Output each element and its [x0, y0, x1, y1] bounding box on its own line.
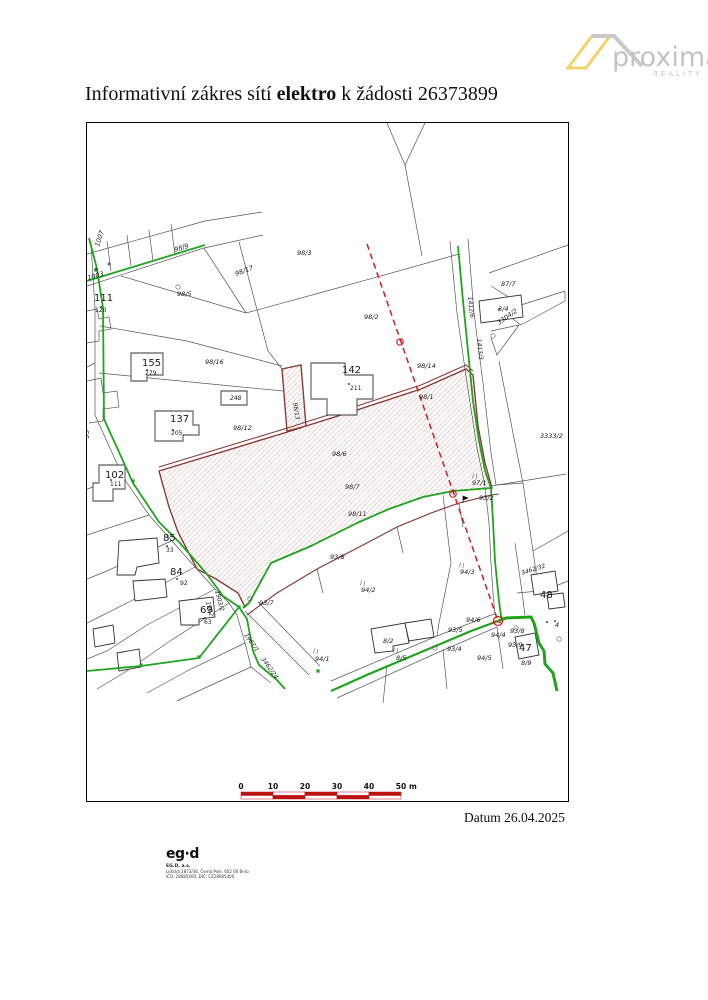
scale-bar-label: 10 [268, 782, 278, 791]
map-label: 99 [87, 430, 91, 439]
network-node-marker [131, 479, 134, 482]
date-label: Datum 26.04.2025 [464, 810, 565, 826]
scale-bar-segment [337, 792, 369, 796]
map-label: 1413/3 [475, 338, 484, 360]
map-label: 98/2 [364, 313, 379, 321]
map-label: 93/8 [330, 553, 345, 561]
parcel-boundary-line [459, 503, 463, 527]
scale-bar-segment [305, 796, 337, 800]
parcel-boundary-line [443, 649, 447, 689]
map-label: 98/12 [233, 424, 252, 432]
parcel-boundary-line [87, 515, 149, 535]
parcel-boundary-line [127, 235, 131, 266]
provider-block: eg·d EG.D, a.s. Lidická 1873/36, Černá P… [166, 848, 249, 879]
parcel-boundary-line [99, 373, 283, 391]
map-label: 142 [342, 365, 361, 376]
map-label: 1007 [93, 229, 106, 248]
parcel-boundary-line [121, 254, 459, 313]
parcel-boundary-line [515, 543, 525, 615]
scale-bar-segment [273, 792, 305, 796]
map-label: 94/1 [315, 655, 330, 663]
network-node-marker [237, 605, 240, 608]
network-node-marker [316, 669, 319, 672]
map-label: 1003 [87, 270, 105, 282]
building-footprint [117, 538, 159, 575]
parcel-boundary-line [533, 531, 568, 551]
map-label: 98/5 [177, 290, 192, 298]
map-label: 47 [519, 643, 532, 654]
parcel-boundary-line [437, 495, 451, 636]
map-label: 3333/2 [540, 432, 563, 440]
parcel-boundary-line [100, 326, 282, 366]
parcel-boundary-line [491, 325, 519, 355]
map-label: 98/11 [348, 510, 367, 518]
document-page: proxima REALITY Informativní zákres sítí… [0, 0, 708, 1000]
map-label: 8/9 [521, 659, 531, 667]
map-label: 85 [163, 533, 176, 544]
map-label: 93/2 [479, 494, 494, 502]
map-label: 98/14 [417, 362, 436, 370]
scale-bar-segment [305, 792, 337, 796]
electric-network-line [87, 245, 205, 281]
requested-parcel-hatched [159, 369, 492, 607]
map-label: 94/5 [477, 654, 492, 662]
scale-bar-label: 0 [238, 782, 243, 791]
network-node-marker [139, 663, 142, 666]
map-label: 93/8 [510, 627, 525, 635]
map-label: 279 [145, 370, 157, 377]
parcel-boundary-line [177, 667, 251, 701]
parcel-boundary-line [239, 242, 282, 369]
parcel-boundary-line [107, 241, 111, 271]
map-label: 120 [95, 307, 107, 314]
title-prefix: Informativní zákres sítí [85, 83, 277, 105]
map-label: 48 [540, 590, 553, 601]
map-label: 87/7 [501, 280, 516, 288]
map-label: 8/5 [396, 654, 406, 662]
parcel-boundary-line [397, 527, 403, 553]
map-label: 84 [170, 567, 183, 578]
map-label: 102 [105, 470, 124, 481]
map-label: 111 [94, 293, 113, 304]
title-suffix: k žádosti 26373899 [336, 83, 498, 105]
egd-logo: eg·d [166, 848, 249, 861]
scale-bar-label: 30 [332, 782, 342, 791]
scale-bar-segment [369, 796, 401, 800]
network-node-marker [197, 655, 200, 658]
map-label: 63 [204, 619, 212, 626]
map-label: 94/2 [361, 586, 376, 594]
proxima-logo-graphic: proxima REALITY [558, 20, 708, 80]
map-label: 98/7 [345, 483, 360, 491]
parcel-boundary-line [87, 235, 263, 286]
map-label: | | [313, 648, 319, 655]
scale-bar-label: 50 [396, 782, 406, 791]
map-label: 94/6 [466, 616, 481, 624]
map-label: 155 [142, 358, 161, 369]
parcel-boundary-line [489, 245, 568, 273]
building-footprint [405, 619, 434, 641]
parcel-boundary-line [317, 569, 323, 593]
map-symbol-circle [557, 637, 561, 641]
cadastral-map: 1007100398/998/598/1798/398/287/73/43304… [87, 123, 568, 801]
parcel-boundary-line [383, 665, 387, 703]
scale-bar-label: 40 [364, 782, 374, 791]
scale-bar-segment [273, 796, 305, 800]
map-label: 98/9 [173, 242, 189, 254]
logo-tagline-text: REALITY [653, 70, 703, 78]
parcel-boundary-line [499, 361, 539, 593]
map-label: 93/5 [448, 626, 463, 634]
parcel-boundary-line [387, 123, 425, 165]
proxima-reality-logo: proxima REALITY [558, 20, 708, 80]
map-label: 92 [180, 580, 188, 587]
scale-bar-segment [241, 796, 273, 800]
parcel-boundary-line [147, 643, 245, 693]
map-label: 94/4 [491, 631, 506, 639]
parcel-boundary-line [258, 602, 320, 666]
map-label: 211 [350, 385, 362, 392]
map-label: 69 [200, 605, 213, 616]
cadastral-map-frame: 1007100398/998/598/1798/398/287/73/43304… [86, 122, 569, 802]
parcel-boundary-line [405, 165, 422, 256]
map-label: 248 [230, 395, 242, 402]
map-symbol-circle [491, 334, 495, 338]
map-label: 94/3 [460, 568, 475, 576]
parcel-boundary-line [87, 309, 111, 343]
parcel-boundary-line [87, 363, 95, 367]
map-label: 205 [171, 430, 183, 437]
house-number-dot [546, 621, 548, 623]
map-label: 4 [555, 621, 559, 629]
map-label: 111 [110, 481, 122, 488]
map-label: 98/17 [234, 264, 255, 278]
map-label: 1903/2 [213, 590, 225, 612]
map-label: 98/16 [205, 358, 224, 366]
title-bold-word: elektro [277, 83, 337, 105]
scale-bar-segment [369, 792, 401, 796]
map-label: 98/6 [332, 450, 347, 458]
logo-yellow-parallelogram [568, 36, 610, 68]
parcel-boundary-line [521, 291, 565, 305]
map-symbol-circle [176, 285, 180, 289]
provider-ids: IČO: 28085400, DIČ: CZ28085400 [166, 874, 249, 879]
page-title: Informativní zákres sítí elektro k žádos… [85, 83, 498, 106]
building-footprint [93, 625, 115, 647]
map-label: 137 [170, 414, 189, 425]
parcel-boundary-line [149, 230, 153, 261]
logo-brand-text: proxima [612, 42, 708, 73]
map-label: 33 [166, 547, 174, 554]
scale-bar-unit: m [409, 782, 417, 791]
map-label: 1412/6 [466, 296, 475, 318]
map-label: 93/4 [447, 645, 462, 653]
parcel-boundary-line [204, 248, 246, 313]
scale-bar-label: 20 [300, 782, 310, 791]
map-label: 98/3 [297, 249, 312, 257]
map-label: 98/1 [419, 393, 434, 401]
parcel-boundary-line [521, 301, 565, 325]
map-label: 97/1 [472, 479, 487, 487]
scale-bar-segment [337, 796, 369, 800]
map-label: 93/7 [259, 599, 274, 607]
scale-bar-segment [241, 792, 273, 796]
house-number-dot [176, 578, 178, 580]
requested-parcel-hatched [282, 365, 306, 431]
map-label: 8/2 [383, 637, 393, 645]
building-footprint [133, 579, 167, 601]
